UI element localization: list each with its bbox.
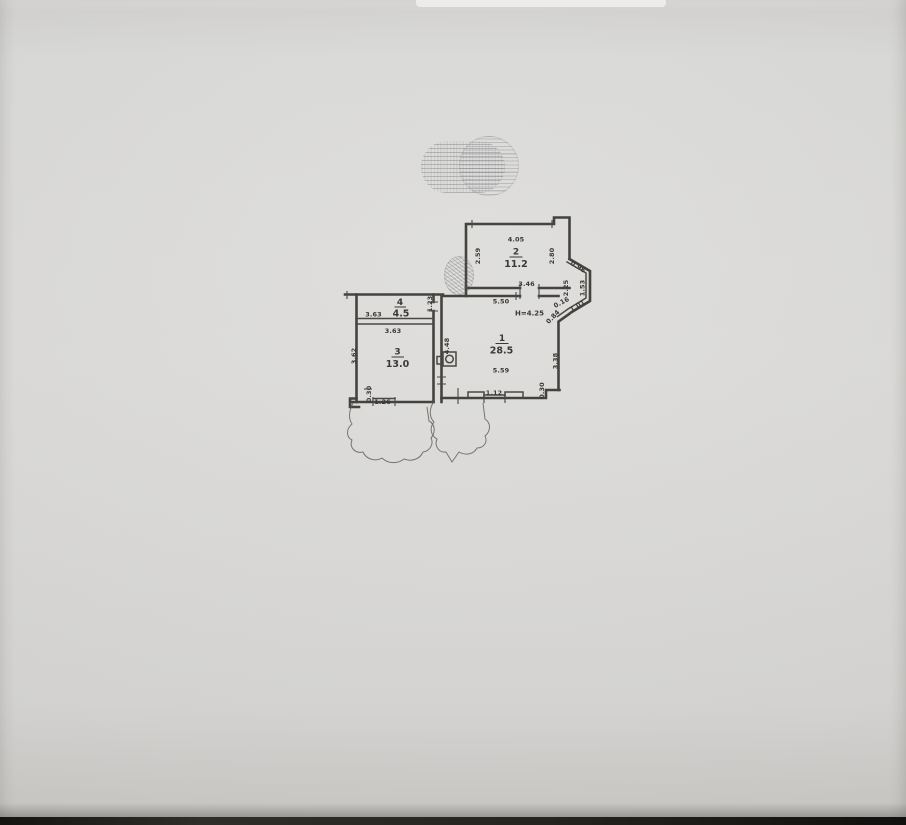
dim-room3-left: 3.62 [350, 348, 358, 364]
room2-area: 11.2 [504, 259, 527, 270]
dim-room1-right: 3.38 [552, 352, 560, 369]
photo-dark-edge [0, 817, 906, 825]
dim-room3-window: 1.26 [374, 398, 391, 406]
dim-bay-right: 1.53 [579, 280, 587, 296]
dim-room4-depth: 1.23 [426, 296, 434, 312]
room2-number: 2 [513, 248, 519, 258]
dim-room4-width: 3.63 [365, 311, 381, 319]
dim-room2-door-wall: 3.46 [518, 280, 535, 288]
dim-room1-bottom: 5.59 [493, 367, 510, 375]
paper-bottom-shadow [0, 803, 906, 817]
room3-number: 3 [394, 348, 400, 358]
dim-room2-right: 2.80 [548, 247, 556, 264]
illegible-stamp [421, 141, 505, 193]
dim-room1-left: 4.48 [443, 337, 451, 354]
room1-area: 28.5 [490, 346, 513, 357]
dim-room3-width: 3.63 [385, 327, 401, 335]
cloud-left [348, 403, 435, 463]
dim-room2-width: 4.05 [508, 236, 525, 244]
dim-room1-offset: 0.30 [538, 382, 546, 399]
dim-room2-left: 2.59 [474, 247, 482, 264]
cloud-scribbles [348, 401, 490, 463]
dim-bay-bottom: 1.01 [568, 298, 587, 314]
round-seal-icon [444, 256, 474, 295]
stamp-circle-overlay [459, 136, 519, 196]
scanned-floor-plan-page: 2 11.2 1 28.5 3 13.0 4 4.5 4.05 2.59 2.8… [0, 0, 906, 825]
floor-plan-drawing: 2 11.2 1 28.5 3 13.0 4 4.5 4.05 2.59 2.8… [0, 0, 906, 825]
ceiling-height-note: H=4.25 [515, 310, 544, 318]
dim-room1-top: 5.50 [493, 298, 510, 306]
cloud-center [430, 401, 489, 462]
room1-number: 1 [499, 334, 505, 344]
room3-bottom-wall [350, 399, 434, 408]
dim-room1-window: 1.12 [486, 389, 502, 397]
room4-area: 4.5 [393, 309, 410, 320]
dim-bay-inner: 2.25 [562, 279, 570, 296]
vent-circle [446, 355, 454, 363]
dim-room3-offset: 0.30 [365, 385, 373, 402]
room3-area: 13.0 [386, 359, 410, 370]
